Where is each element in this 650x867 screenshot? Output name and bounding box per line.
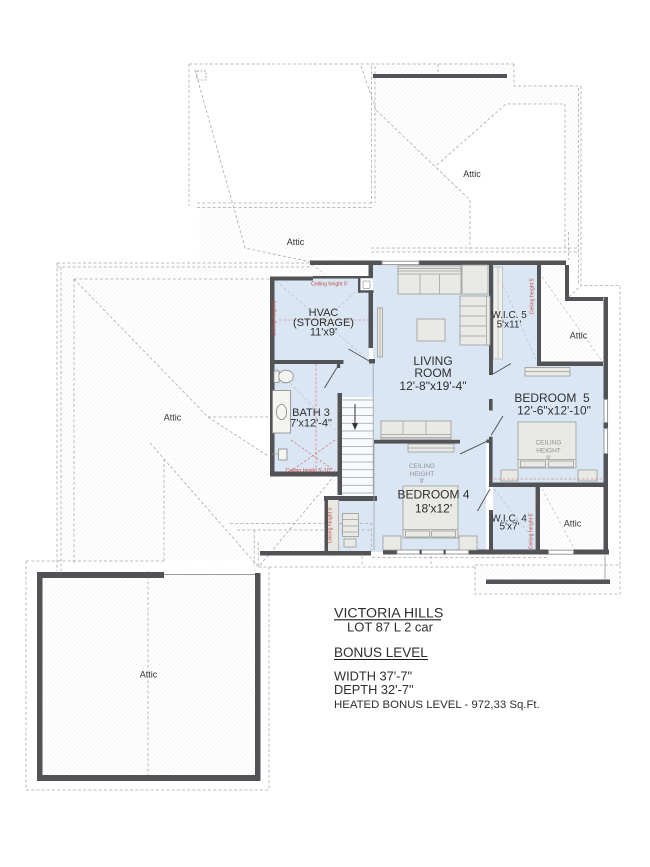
svg-text:Attic: Attic: [287, 237, 305, 247]
svg-text:CEILING: CEILING: [409, 463, 435, 470]
svg-text:LOT 87 L 2 car: LOT 87 L 2 car: [347, 620, 434, 635]
svg-text:7'x12'-4": 7'x12'-4": [290, 418, 332, 430]
svg-text:18'x12': 18'x12': [415, 502, 452, 516]
svg-text:9': 9': [546, 455, 551, 462]
svg-text:Attic: Attic: [164, 413, 182, 423]
svg-text:BEDROOM 4: BEDROOM 4: [397, 488, 469, 502]
svg-text:5'x11': 5'x11': [497, 320, 522, 331]
svg-text:12'-6"x12'-10": 12'-6"x12'-10": [517, 404, 591, 418]
svg-text:Attic: Attic: [564, 519, 582, 529]
svg-text:DEPTH 32'-7": DEPTH 32'-7": [334, 682, 414, 697]
svg-text:12'-8"x19'-4": 12'-8"x19'-4": [399, 379, 466, 393]
svg-text:ROOM: ROOM: [414, 366, 451, 380]
svg-text:HEIGHT: HEIGHT: [536, 448, 561, 455]
svg-text:Ceiling height 5': Ceiling height 5': [328, 507, 334, 544]
svg-text:Ceiling height 5'-10": Ceiling height 5'-10": [285, 468, 331, 474]
svg-text:Attic: Attic: [140, 670, 158, 680]
svg-text:CEILING: CEILING: [535, 440, 561, 447]
svg-text:BONUS LEVEL: BONUS LEVEL: [334, 645, 428, 660]
svg-text:11'x9': 11'x9': [310, 327, 337, 339]
svg-text:9': 9': [420, 478, 425, 485]
svg-text:Attic: Attic: [463, 169, 481, 179]
svg-text:HEIGHT: HEIGHT: [410, 471, 435, 478]
svg-text:HEATED BONUS LEVEL - 972,33 Sq: HEATED BONUS LEVEL - 972,33 Sq.Ft.: [334, 699, 540, 711]
svg-text:Ceiling height 5': Ceiling height 5': [530, 278, 536, 315]
svg-text:Ceiling height 5': Ceiling height 5': [311, 282, 348, 288]
svg-text:Attic: Attic: [570, 331, 588, 341]
svg-text:Ceiling height 5': Ceiling height 5': [272, 300, 278, 337]
svg-text:Ceiling height 5': Ceiling height 5': [529, 513, 535, 550]
svg-text:5'x7': 5'x7': [500, 522, 520, 533]
